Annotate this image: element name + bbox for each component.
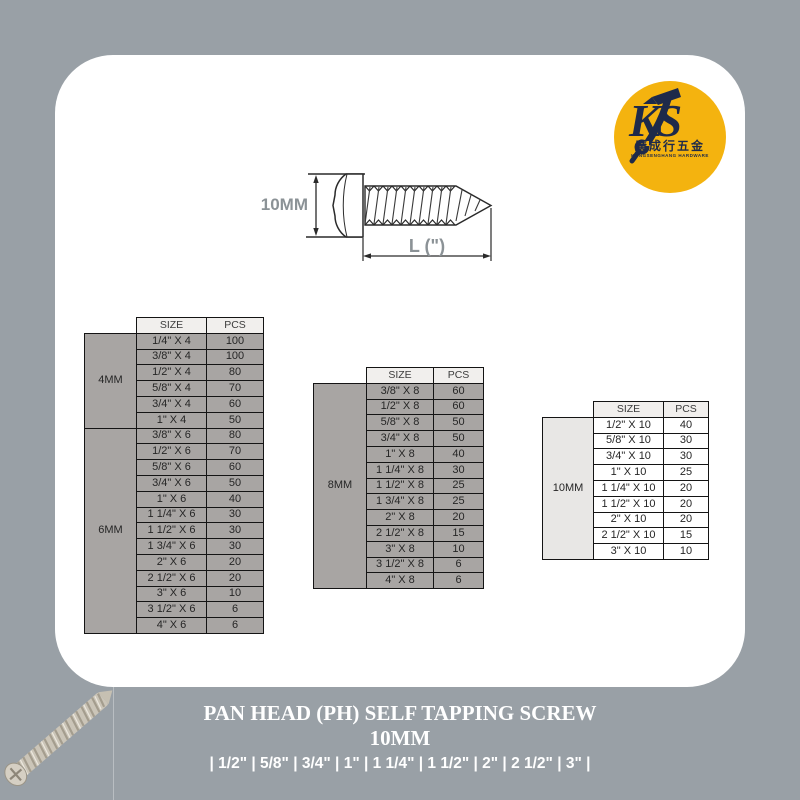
pcs-cell: 50: [434, 415, 484, 431]
column-header: SIZE: [367, 368, 434, 384]
column-header: SIZE: [137, 318, 207, 334]
diameter-label-cell: 10MM: [543, 417, 594, 559]
size-cell: 1" X 4: [137, 412, 207, 428]
pcs-cell: 30: [664, 449, 709, 465]
pcs-cell: 20: [664, 480, 709, 496]
size-cell: 2" X 10: [594, 512, 664, 528]
pcs-cell: 100: [207, 349, 264, 365]
size-cell: 3" X 8: [367, 541, 434, 557]
size-cell: 4" X 8: [367, 573, 434, 589]
size-cell: 1 1/4" X 6: [137, 507, 207, 523]
size-cell: 5/8" X 10: [594, 433, 664, 449]
pcs-cell: 60: [207, 460, 264, 476]
column-header: SIZE: [594, 402, 664, 418]
pcs-cell: 60: [207, 396, 264, 412]
screw-threads: [365, 186, 491, 225]
size-cell: 4" X 6: [137, 618, 207, 634]
size-cell: 1 1/2" X 8: [367, 478, 434, 494]
size-cell: 3 1/2" X 8: [367, 557, 434, 573]
pcs-cell: 50: [207, 412, 264, 428]
pcs-cell: 70: [207, 381, 264, 397]
logo-monogram-art: KS: [614, 81, 726, 193]
size-cell: 1/2" X 4: [137, 365, 207, 381]
pcs-cell: 25: [664, 465, 709, 481]
size-pcs-table: SIZEPCS10MM1/2" X 10405/8" X 10303/4" X …: [542, 401, 709, 560]
available-sizes-line: | 1/2" | 5/8" | 3/4" | 1" | 1 1/4" | 1 1…: [0, 756, 800, 772]
diameter-label-cell: 6MM: [85, 428, 137, 633]
size-cell: 1/2" X 6: [137, 444, 207, 460]
table-10mm: SIZEPCS10MM1/2" X 10405/8" X 10303/4" X …: [542, 401, 709, 560]
pcs-cell: 70: [207, 444, 264, 460]
diameter-dimension-line: [313, 175, 318, 236]
size-cell: 2 1/2" X 8: [367, 525, 434, 541]
logo-english-name: KONGSENGHANG HARDWARE: [614, 154, 726, 159]
pcs-cell: 60: [434, 399, 484, 415]
product-title: PAN HEAD (PH) SELF TAPPING SCREW: [0, 703, 800, 724]
size-cell: 1 1/4" X 8: [367, 462, 434, 478]
size-cell: 3 1/2" X 6: [137, 602, 207, 618]
table-8mm: SIZEPCS8MM3/8" X 8601/2" X 8605/8" X 850…: [313, 367, 484, 589]
size-cell: 1 3/4" X 6: [137, 539, 207, 555]
pcs-cell: 15: [664, 528, 709, 544]
pcs-cell: 60: [434, 383, 484, 399]
column-header: PCS: [207, 318, 264, 334]
pcs-cell: 20: [434, 510, 484, 526]
pcs-cell: 40: [434, 446, 484, 462]
pcs-cell: 20: [207, 554, 264, 570]
size-cell: 3" X 6: [137, 586, 207, 602]
size-cell: 2" X 6: [137, 554, 207, 570]
pcs-cell: 6: [207, 618, 264, 634]
pcs-cell: 10: [434, 541, 484, 557]
size-cell: 2 1/2" X 6: [137, 570, 207, 586]
size-pcs-table: SIZEPCS4MM1/4" X 41003/8" X 41001/2" X 4…: [84, 317, 264, 634]
product-sheet: { "colors": { "background": "#99A0A6", "…: [0, 0, 800, 800]
pcs-cell: 10: [664, 544, 709, 560]
size-cell: 1/2" X 10: [594, 417, 664, 433]
size-cell: 1 3/4" X 8: [367, 494, 434, 510]
size-cell: 1 1/2" X 6: [137, 523, 207, 539]
column-header: PCS: [434, 368, 484, 384]
pcs-cell: 100: [207, 333, 264, 349]
diameter-label-cell: 8MM: [314, 383, 367, 588]
pcs-cell: 20: [207, 570, 264, 586]
pcs-cell: 30: [664, 433, 709, 449]
size-cell: 3/4" X 8: [367, 431, 434, 447]
pcs-cell: 25: [434, 494, 484, 510]
brand-logo: KS 廣成行五金 KONGSENGHANG HARDWARE: [614, 81, 726, 193]
pcs-cell: 40: [664, 417, 709, 433]
pcs-cell: 30: [207, 523, 264, 539]
pcs-cell: 50: [207, 475, 264, 491]
pcs-cell: 30: [434, 462, 484, 478]
logo-chinese-name: 廣成行五金: [614, 140, 726, 152]
size-cell: 1/2" X 8: [367, 399, 434, 415]
size-pcs-table: SIZEPCS8MM3/8" X 8601/2" X 8605/8" X 850…: [313, 367, 484, 589]
pcs-cell: 40: [207, 491, 264, 507]
pcs-cell: 25: [434, 478, 484, 494]
pcs-cell: 6: [207, 602, 264, 618]
diameter-label-cell: 4MM: [85, 333, 137, 428]
size-cell: 1 1/2" X 10: [594, 496, 664, 512]
pcs-cell: 6: [434, 573, 484, 589]
pcs-cell: 50: [434, 431, 484, 447]
table-row: 8MM3/8" X 860: [314, 383, 484, 399]
table-corner-spacer: [85, 318, 137, 334]
size-cell: 1" X 6: [137, 491, 207, 507]
pcs-cell: 30: [207, 507, 264, 523]
table-4mm-6mm: SIZEPCS4MM1/4" X 41003/8" X 41001/2" X 4…: [84, 317, 264, 634]
table-row: 10MM1/2" X 1040: [543, 417, 709, 433]
pcs-cell: 20: [664, 496, 709, 512]
product-subtitle: 10MM: [0, 728, 800, 749]
size-cell: 1" X 10: [594, 465, 664, 481]
table-corner-spacer: [314, 368, 367, 384]
screw-technical-drawing: 10MM L ("): [240, 158, 510, 273]
pcs-cell: 6: [434, 557, 484, 573]
table-row: 4MM1/4" X 4100: [85, 333, 264, 349]
size-cell: 2" X 8: [367, 510, 434, 526]
size-cell: 3/4" X 4: [137, 396, 207, 412]
size-cell: 3/4" X 6: [137, 475, 207, 491]
size-cell: 5/8" X 4: [137, 381, 207, 397]
size-cell: 3/8" X 4: [137, 349, 207, 365]
size-cell: 3/8" X 8: [367, 383, 434, 399]
table-row: 6MM3/8" X 680: [85, 428, 264, 444]
size-cell: 3" X 10: [594, 544, 664, 560]
length-label: L ("): [409, 236, 445, 256]
size-cell: 5/8" X 8: [367, 415, 434, 431]
pcs-cell: 30: [207, 539, 264, 555]
size-cell: 1" X 8: [367, 446, 434, 462]
column-header: PCS: [664, 402, 709, 418]
size-cell: 3/8" X 6: [137, 428, 207, 444]
size-cell: 1/4" X 4: [137, 333, 207, 349]
screw-head-outline: [333, 174, 363, 237]
size-cell: 5/8" X 6: [137, 460, 207, 476]
size-cell: 3/4" X 10: [594, 449, 664, 465]
pcs-cell: 80: [207, 428, 264, 444]
size-cell: 1 1/4" X 10: [594, 480, 664, 496]
pcs-cell: 15: [434, 525, 484, 541]
pcs-cell: 10: [207, 586, 264, 602]
pcs-cell: 20: [664, 512, 709, 528]
table-corner-spacer: [543, 402, 594, 418]
size-cell: 2 1/2" X 10: [594, 528, 664, 544]
head-diameter-label: 10MM: [261, 195, 308, 214]
pcs-cell: 80: [207, 365, 264, 381]
